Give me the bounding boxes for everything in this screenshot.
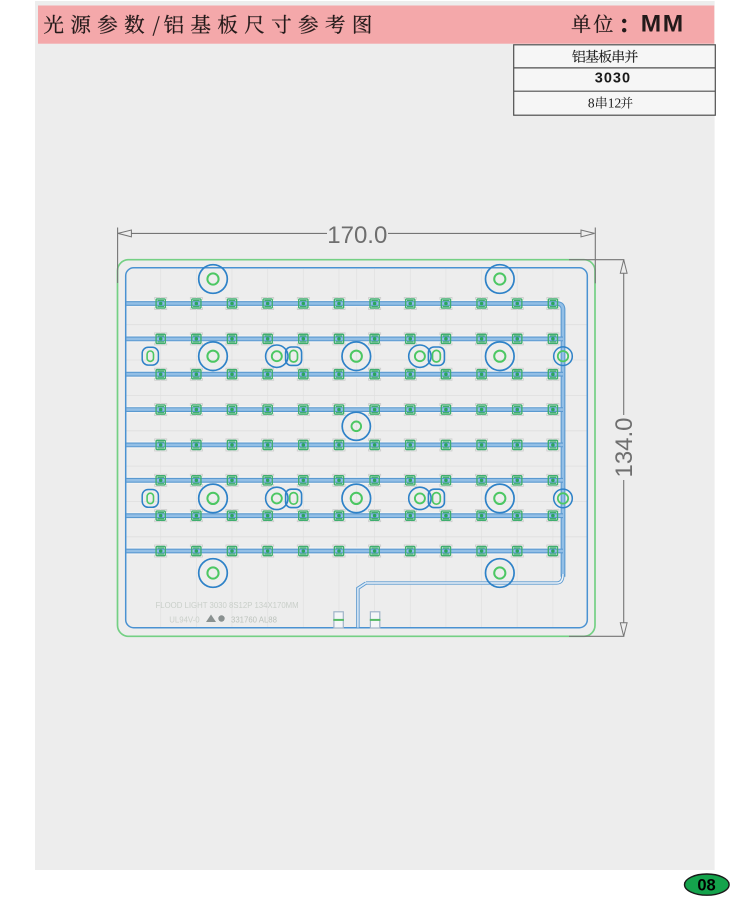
svg-text:134.0: 134.0 [611,417,638,477]
svg-text:170.0: 170.0 [327,222,387,249]
svg-text:3030: 3030 [595,70,631,86]
svg-text:331760 AL88: 331760 AL88 [231,615,277,624]
svg-text:UL94V-0: UL94V-0 [169,615,200,624]
svg-text:8: 8 [588,96,595,111]
svg-text:08: 08 [697,877,715,895]
svg-text:12: 12 [608,96,622,111]
svg-text:MM: MM [641,11,685,38]
svg-text:FLOOD LIGHT 3030 8S12P 134X170: FLOOD LIGHT 3030 8S12P 134X170MM [156,601,299,610]
